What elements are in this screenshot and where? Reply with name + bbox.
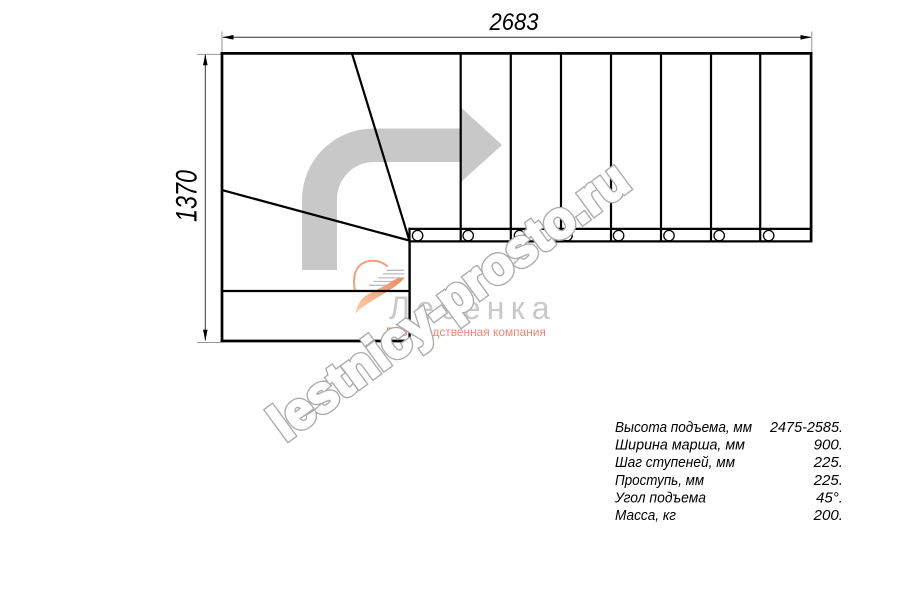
svg-text:Угол подъема: Угол подъема xyxy=(614,489,706,506)
svg-text:200.: 200. xyxy=(813,507,843,524)
svg-text:Масса, кг: Масса, кг xyxy=(615,507,676,524)
svg-text:2683: 2683 xyxy=(489,9,540,36)
svg-text:1370: 1370 xyxy=(171,170,204,222)
svg-text:225.: 225. xyxy=(813,472,843,489)
svg-text:Шаг ступеней, мм: Шаг ступеней, мм xyxy=(615,454,736,471)
svg-text:900.: 900. xyxy=(814,437,843,454)
svg-text:Ширина марша, мм: Ширина марша, мм xyxy=(615,437,746,454)
svg-text:225.: 225. xyxy=(813,454,843,471)
svg-text:Проступь, мм: Проступь, мм xyxy=(615,472,705,489)
svg-text:Высота подъема, мм: Высота подъема, мм xyxy=(615,419,753,436)
svg-text:2475-2585.: 2475-2585. xyxy=(769,419,843,436)
svg-text:45°.: 45°. xyxy=(816,489,843,506)
